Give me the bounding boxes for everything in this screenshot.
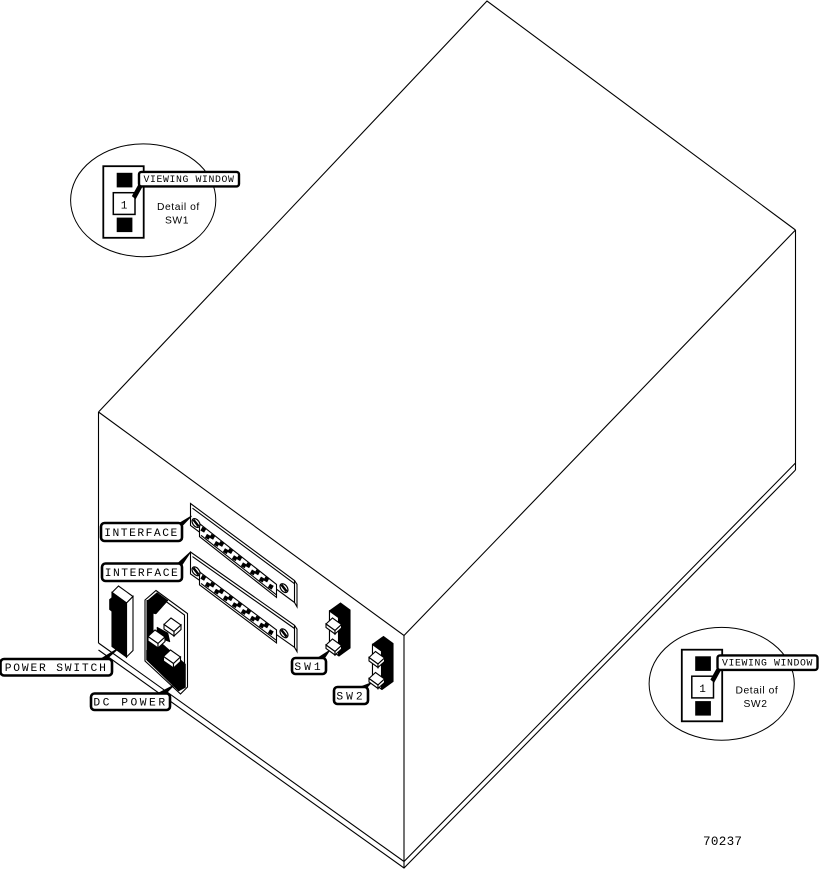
svg-text:70237: 70237 bbox=[703, 835, 742, 849]
svg-text:1: 1 bbox=[699, 684, 706, 696]
svg-text:SW2: SW2 bbox=[336, 691, 365, 703]
svg-text:SW1: SW1 bbox=[294, 662, 323, 674]
svg-text:VIEWING WINDOW: VIEWING WINDOW bbox=[722, 658, 813, 669]
svg-text:1: 1 bbox=[121, 200, 128, 212]
svg-text:INTERFACE: INTERFACE bbox=[104, 528, 179, 540]
svg-text:SW1: SW1 bbox=[165, 216, 189, 227]
svg-text:Detail of: Detail of bbox=[736, 685, 779, 696]
svg-text:SW2: SW2 bbox=[743, 699, 767, 710]
svg-text:VIEWING WINDOW: VIEWING WINDOW bbox=[144, 174, 235, 185]
svg-text:Detail of: Detail of bbox=[157, 202, 200, 213]
svg-text:DC POWER: DC POWER bbox=[93, 698, 167, 710]
svg-text:POWER SWITCH: POWER SWITCH bbox=[5, 663, 108, 675]
svg-text:INTERFACE: INTERFACE bbox=[105, 568, 180, 580]
